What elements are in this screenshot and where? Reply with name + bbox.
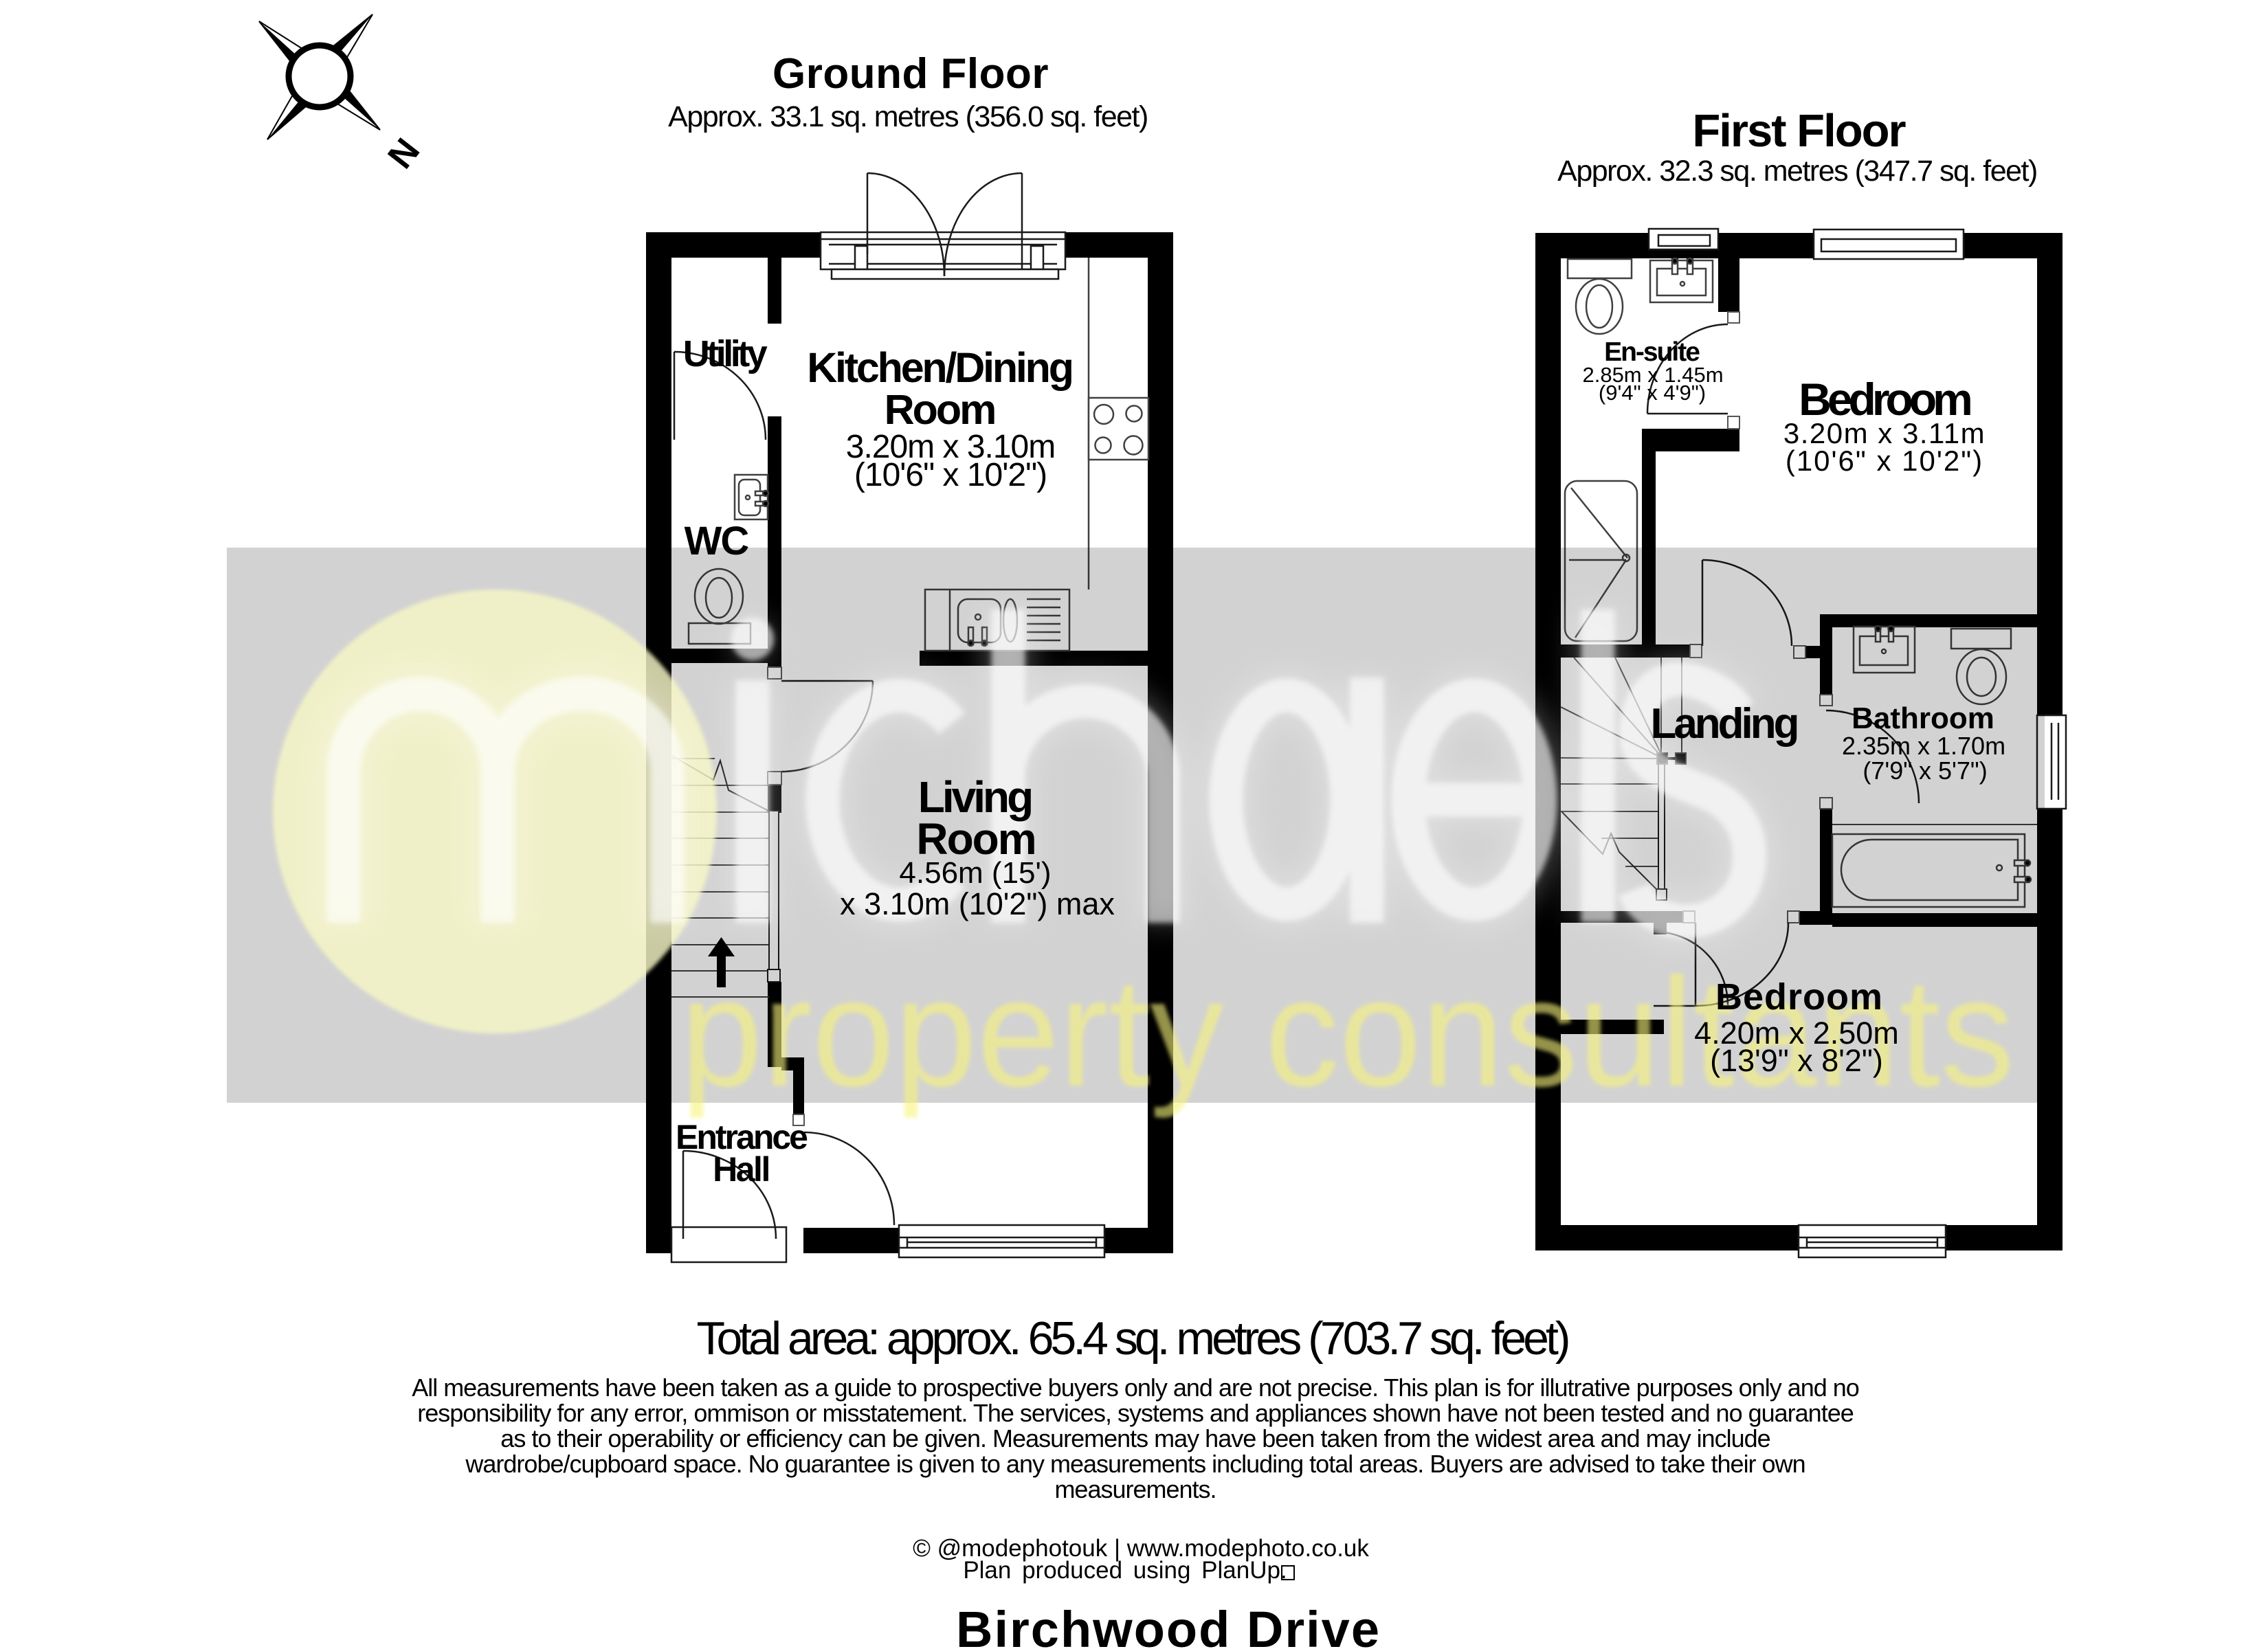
svg-text:(9'4" x 4'9"): (9'4" x 4'9") <box>1599 381 1706 405</box>
svg-text:Room: Room <box>885 386 995 433</box>
svg-text:as to their operability or eff: as to their operability or efficiency ca… <box>500 1424 1770 1452</box>
svg-text:Ground Floor: Ground Floor <box>772 50 1049 98</box>
svg-text:Utility: Utility <box>683 333 768 374</box>
svg-text:wardrobe/cupboard space. No gu: wardrobe/cupboard space. No guarantee is… <box>465 1450 1805 1478</box>
svg-text:WC: WC <box>685 519 749 563</box>
svg-text:(7'9" x 5'7"): (7'9" x 5'7") <box>1863 756 1987 785</box>
svg-text:responsibility for any error,: responsibility for any error, ommison or… <box>417 1399 1854 1427</box>
svg-text:Plan produced using PlanUp.: Plan produced using PlanUp. <box>963 1557 1287 1584</box>
svg-text:Bedroom: Bedroom <box>1715 976 1883 1018</box>
svg-text:4.56m (15'): 4.56m (15') <box>899 856 1051 890</box>
svg-text:Bathroom: Bathroom <box>1852 702 1994 735</box>
svg-text:Total area: approx. 65.4 sq. m: Total area: approx. 65.4 sq. metres (703… <box>696 1312 1568 1365</box>
svg-text:Landing: Landing <box>1650 700 1797 748</box>
svg-text:Kitchen/Dining: Kitchen/Dining <box>807 344 1072 391</box>
svg-text:(10'6" x 10'2"): (10'6" x 10'2") <box>1786 445 1983 477</box>
svg-text:Approx. 33.1 sq. metres (356.0: Approx. 33.1 sq. metres (356.0 sq. feet) <box>668 100 1148 133</box>
svg-text:measurements.: measurements. <box>1054 1475 1216 1503</box>
svg-text:2.35m x 1.70m: 2.35m x 1.70m <box>1842 732 2005 760</box>
svg-text:All measurements have been tak: All measurements have been taken as a gu… <box>412 1373 1859 1402</box>
svg-text:Birchwood Drive: Birchwood Drive <box>956 1601 1381 1649</box>
svg-text:Hall: Hall <box>713 1150 769 1189</box>
svg-text:First Floor: First Floor <box>1692 105 1906 157</box>
svg-text:Approx. 32.3 sq. metres (347.7: Approx. 32.3 sq. metres (347.7 sq. feet) <box>1557 155 2037 188</box>
svg-text:x 3.10m (10'2") max: x 3.10m (10'2") max <box>840 886 1115 921</box>
svg-text:(13'9" x 8'2"): (13'9" x 8'2") <box>1710 1043 1883 1078</box>
svg-text:(10'6" x 10'2"): (10'6" x 10'2") <box>854 457 1047 493</box>
